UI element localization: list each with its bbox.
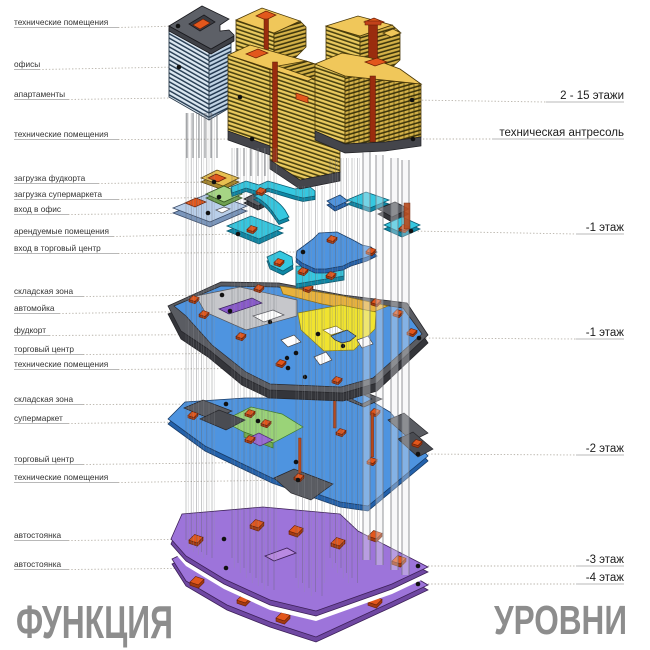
svg-text:супермаркет: супермаркет xyxy=(14,413,63,423)
svg-text:торговый центр: торговый центр xyxy=(14,344,74,354)
svg-text:офисы: офисы xyxy=(14,59,40,69)
svg-text:-2 этаж: -2 этаж xyxy=(586,443,625,455)
svg-text:автостоянка: автостоянка xyxy=(14,559,62,569)
svg-text:складская зона: складская зона xyxy=(14,394,73,404)
svg-text:-3 этаж: -3 этаж xyxy=(586,554,625,566)
svg-text:арендуемые помещения: арендуемые помещения xyxy=(14,226,109,236)
svg-text:загрузка супермаркета: загрузка супермаркета xyxy=(14,189,102,199)
svg-text:-1 этаж: -1 этаж xyxy=(586,327,625,339)
svg-text:автомойка: автомойка xyxy=(14,303,55,313)
svg-text:технические помещения: технические помещения xyxy=(14,129,108,139)
svg-text:ФУНКЦИЯ: ФУНКЦИЯ xyxy=(16,596,173,648)
svg-text:-4 этаж: -4 этаж xyxy=(586,572,625,584)
svg-text:автостоянка: автостоянка xyxy=(14,530,62,540)
svg-text:УРОВНИ: УРОВНИ xyxy=(494,597,627,643)
svg-text:загрузка фудкорта: загрузка фудкорта xyxy=(14,173,86,183)
svg-text:апартаменты: апартаменты xyxy=(14,89,65,99)
svg-text:технические помещения: технические помещения xyxy=(14,359,108,369)
svg-text:вход в офис: вход в офис xyxy=(14,204,61,214)
svg-text:технические помещения: технические помещения xyxy=(14,472,108,482)
svg-text:фудкорт: фудкорт xyxy=(14,325,46,335)
svg-text:вход в торговый центр: вход в торговый центр xyxy=(14,243,101,253)
svg-text:складская зона: складская зона xyxy=(14,286,73,296)
svg-text:техническая антресоль: техническая антресоль xyxy=(499,127,624,139)
svg-text:технические помещения: технические помещения xyxy=(14,17,108,27)
svg-text:торговый центр: торговый центр xyxy=(14,454,74,464)
svg-text:2 - 15 этажи: 2 - 15 этажи xyxy=(560,90,624,102)
svg-text:-1 этаж: -1 этаж xyxy=(586,222,625,234)
